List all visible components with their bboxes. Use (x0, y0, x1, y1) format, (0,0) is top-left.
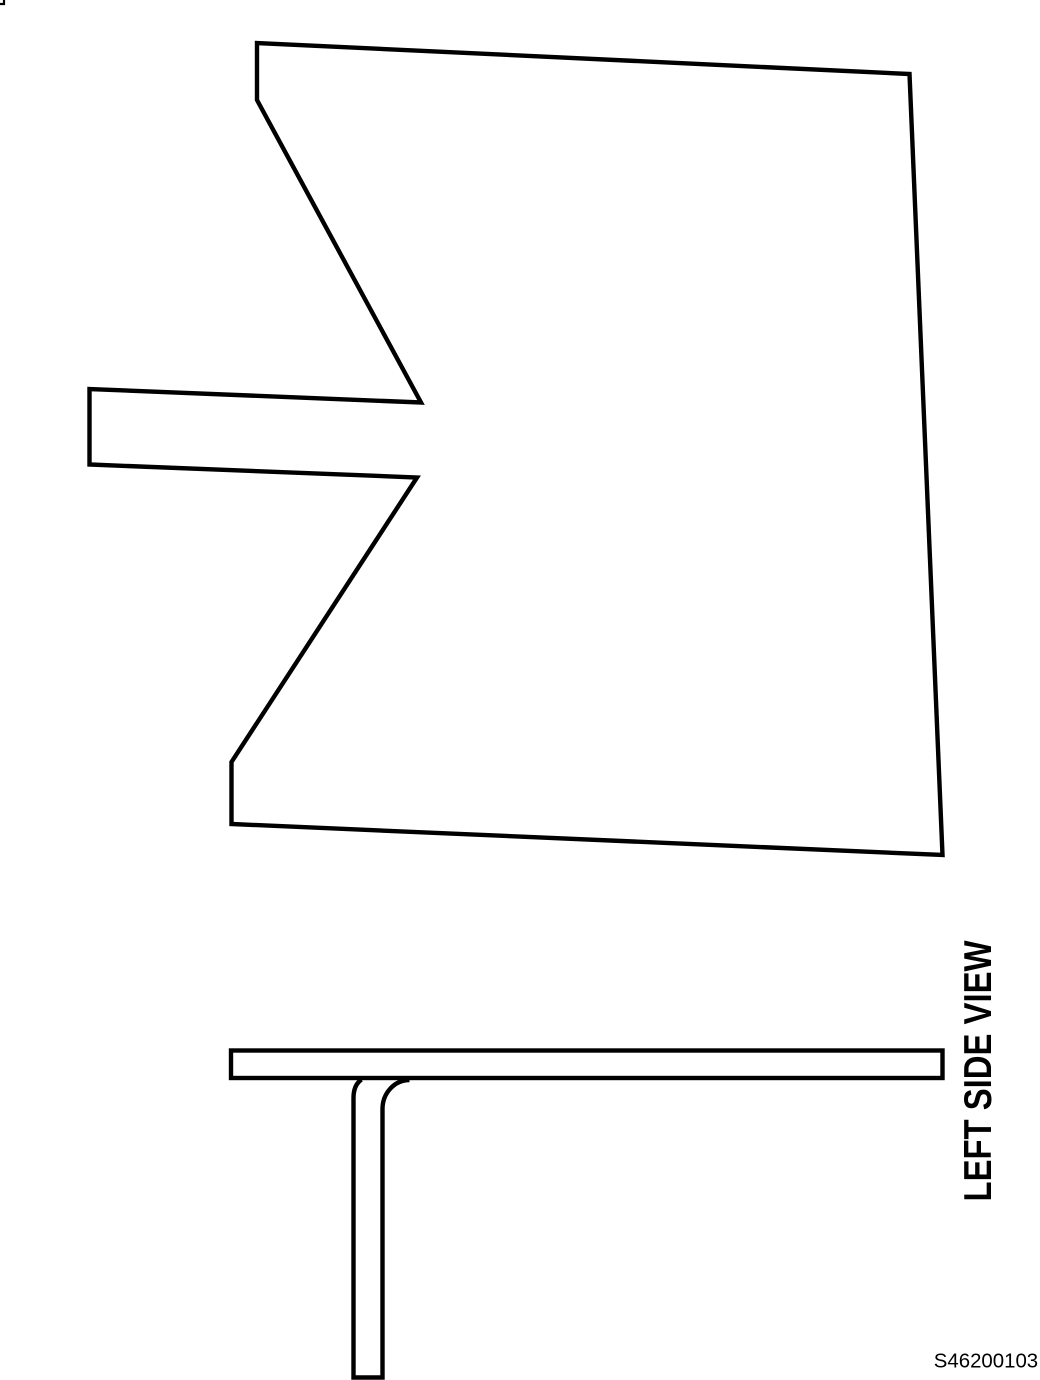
svg-text:S46200103: S46200103 (934, 1351, 1038, 1373)
svg-text:LEFT SIDE VIEW: LEFT SIDE VIEW (957, 940, 1000, 1201)
